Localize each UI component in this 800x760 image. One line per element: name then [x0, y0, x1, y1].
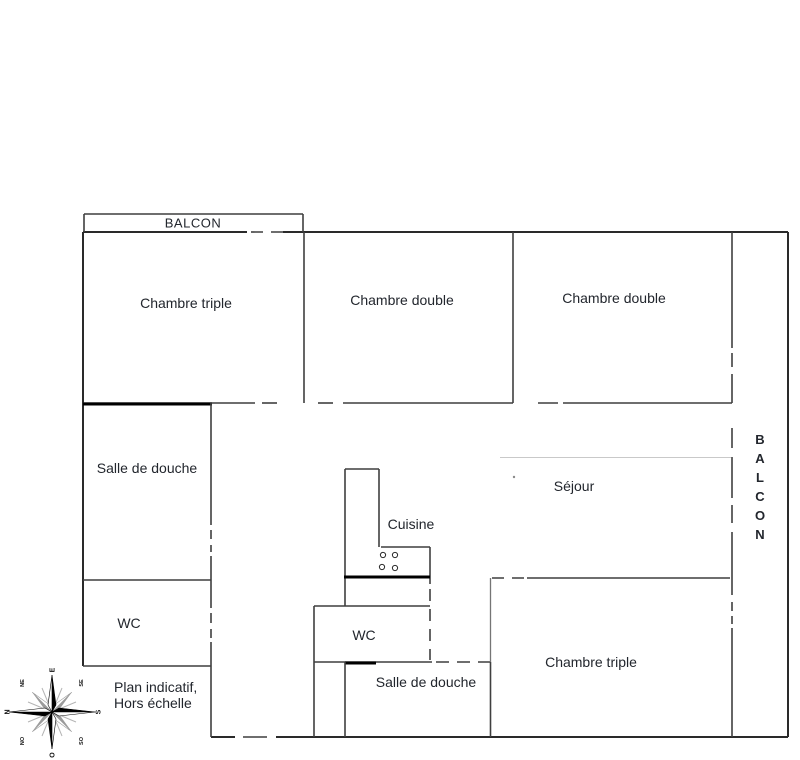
faint-line [500, 458, 731, 479]
floor-plan: E S O N NE SE NO SO BALCON Chambre tripl… [0, 0, 800, 760]
compass-west-label: O [50, 752, 57, 758]
room-label-sejour: Séjour [554, 478, 594, 494]
room-label-wc-mid: WC [352, 627, 375, 643]
room-label-chambre-double-mid: Chambre double [350, 292, 454, 308]
plan-note-line2: Hors échelle [114, 696, 197, 712]
stove-burners-icon [379, 552, 397, 570]
room-label-salle-de-douche-bottom: Salle de douche [376, 674, 476, 690]
room-label-wc-left: WC [117, 615, 140, 631]
compass-southwest-label: SO [79, 736, 85, 745]
plan-note: Plan indicatif, Hors échelle [114, 680, 197, 711]
room-label-salle-de-douche-left: Salle de douche [97, 460, 197, 476]
bottom-rooms-partitions [345, 578, 730, 737]
compass-northeast-label: NE [20, 679, 26, 687]
room-label-cuisine: Cuisine [388, 516, 435, 532]
compass-northwest-label: NO [20, 736, 26, 745]
compass-east-label: E [50, 667, 57, 672]
compass-north-label: N [5, 709, 12, 714]
top-row-partitions [83, 232, 732, 404]
compass-southeast-label: SE [79, 679, 85, 687]
left-rooms-partitions [83, 403, 211, 666]
room-label-chambre-double-right: Chambre double [562, 290, 666, 306]
kitchen-and-wc-walls [314, 469, 490, 737]
plan-note-line1: Plan indicatif, [114, 680, 197, 696]
room-label-chambre-triple-bottom: Chambre triple [545, 654, 637, 670]
floor-plan-drawing: E S O N NE SE NO SO [0, 0, 800, 760]
room-label-chambre-triple-top: Chambre triple [140, 295, 232, 311]
compass-rose-icon: E S O N NE SE NO SO [5, 667, 103, 757]
balcony-right-label: BALCON [753, 432, 768, 546]
compass-south-label: S [96, 709, 103, 714]
balcony-top-label: BALCON [165, 216, 221, 231]
